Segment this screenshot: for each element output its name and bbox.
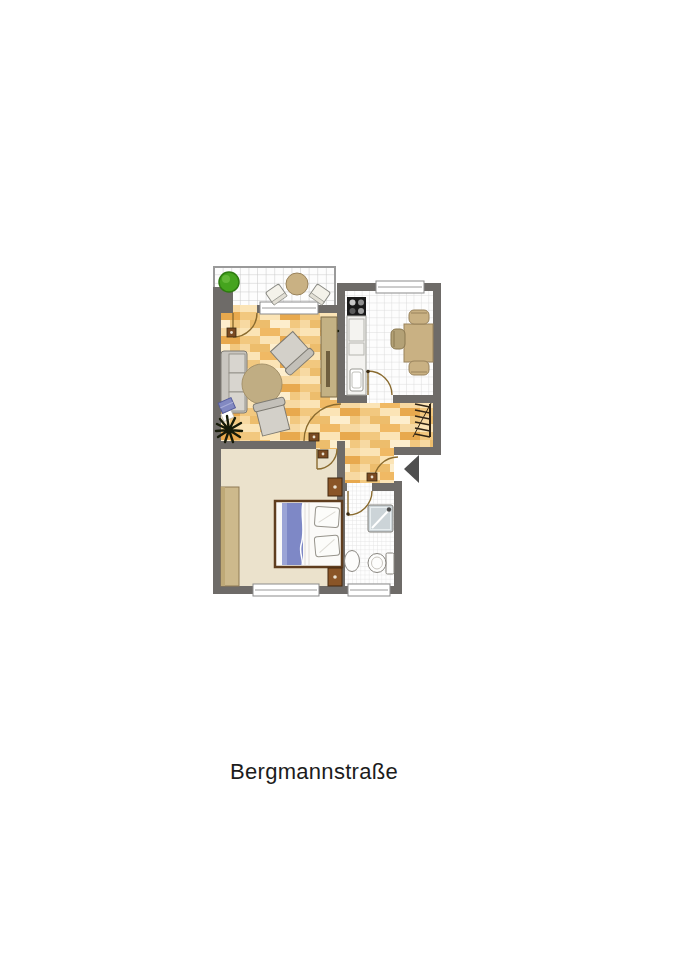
kitchen-door-gap [367,395,393,403]
floor-plan [0,0,679,960]
bathroom-sink [345,551,360,572]
stove [347,297,366,316]
floor-plan-page: Bergmannstraße [0,0,679,960]
bed-pillow-1 [314,506,339,528]
dining-chair-left [391,329,405,349]
shower-head [387,507,391,511]
hallway-floor [345,403,433,483]
double-bed [275,501,342,567]
green-bush [219,272,239,292]
toilet [368,553,394,574]
entrance-triangle-icon [404,455,419,483]
shower [368,505,393,532]
kitchen-counter [347,316,366,395]
street-address-label: Bergmannstraße [230,759,398,785]
wardrobe [221,487,239,586]
bedroom-door-gap [316,441,337,449]
nightstand-bottom [328,568,342,586]
living-room-cabinet [321,317,337,397]
dining-chair-bottom [409,361,429,375]
balcony-table [286,273,308,295]
bed-pillow-2 [314,535,340,557]
nightstand-top [328,478,342,496]
living-room-door-gap [337,403,345,441]
dining-chair-top [409,310,429,324]
green-bush-highlight [222,275,230,283]
balcony-door-gap [233,305,257,313]
dining-table [404,324,433,362]
round-rug [242,364,282,404]
bathroom-door-gap [347,483,372,491]
entrance-step-wall [394,447,441,455]
